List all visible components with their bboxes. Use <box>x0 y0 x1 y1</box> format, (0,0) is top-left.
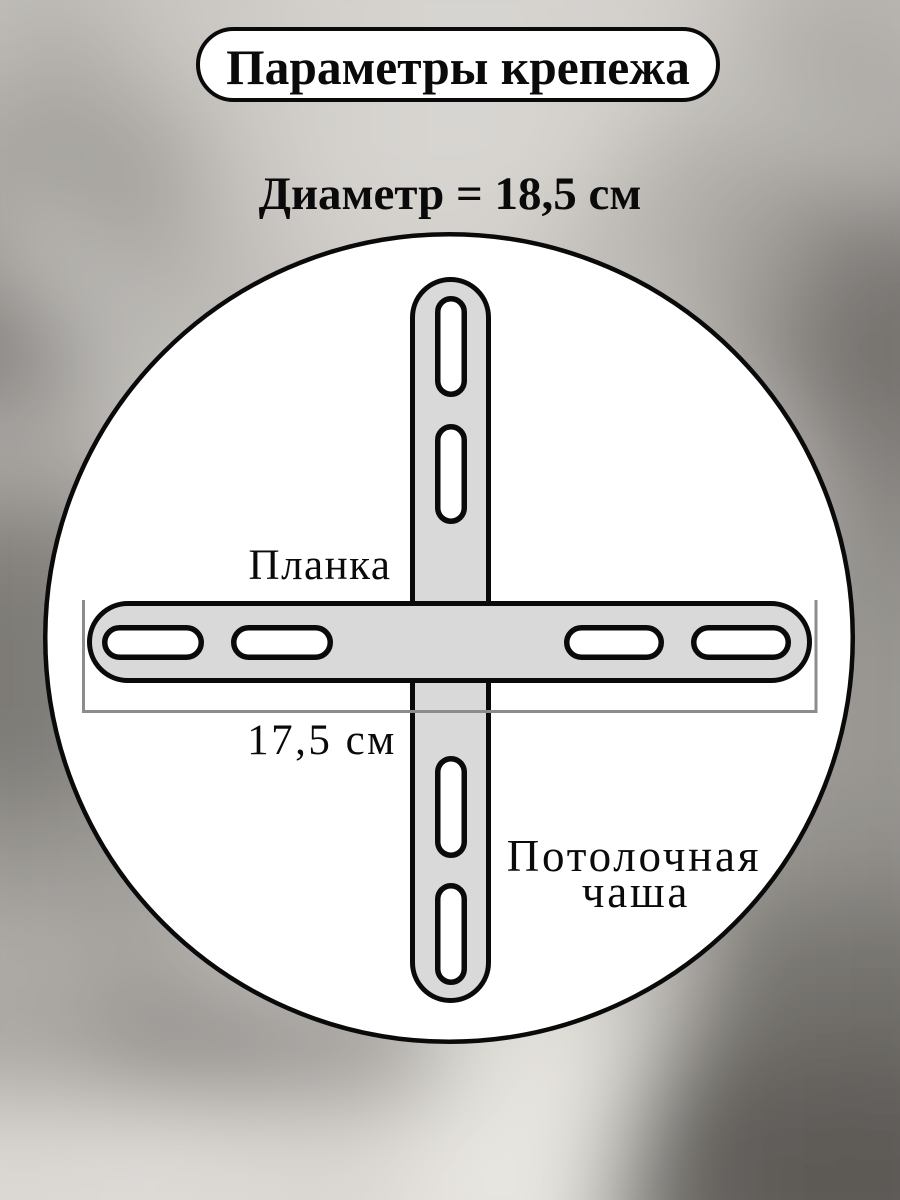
svg-text:Диаметр = 18,5 см: Диаметр = 18,5 см <box>259 168 642 220</box>
svg-text:Параметры крепежа: Параметры крепежа <box>226 40 690 95</box>
svg-text:Планка: Планка <box>249 542 392 589</box>
svg-text:чаша: чаша <box>582 867 690 917</box>
svg-text:17,5 см: 17,5 см <box>247 717 397 764</box>
